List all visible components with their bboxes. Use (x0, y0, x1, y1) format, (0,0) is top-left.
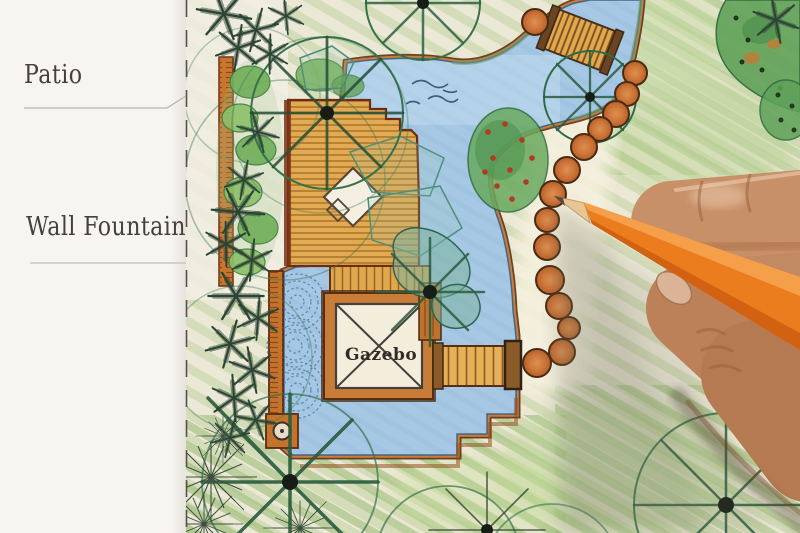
index-finger (672, 210, 800, 222)
margin-shade (170, 0, 186, 533)
thumb-base (754, 374, 800, 450)
label-gazebo: Gazebo (345, 345, 417, 365)
boardwalk (433, 341, 521, 389)
plan-drawing (0, 0, 800, 533)
berry-shrub (468, 108, 548, 212)
label-wall-fountain: Wall Fountain (26, 212, 186, 242)
label-patio: Patio (24, 60, 82, 90)
photo-landscape-plan: Patio Wall Fountain Gazebo (0, 0, 800, 533)
